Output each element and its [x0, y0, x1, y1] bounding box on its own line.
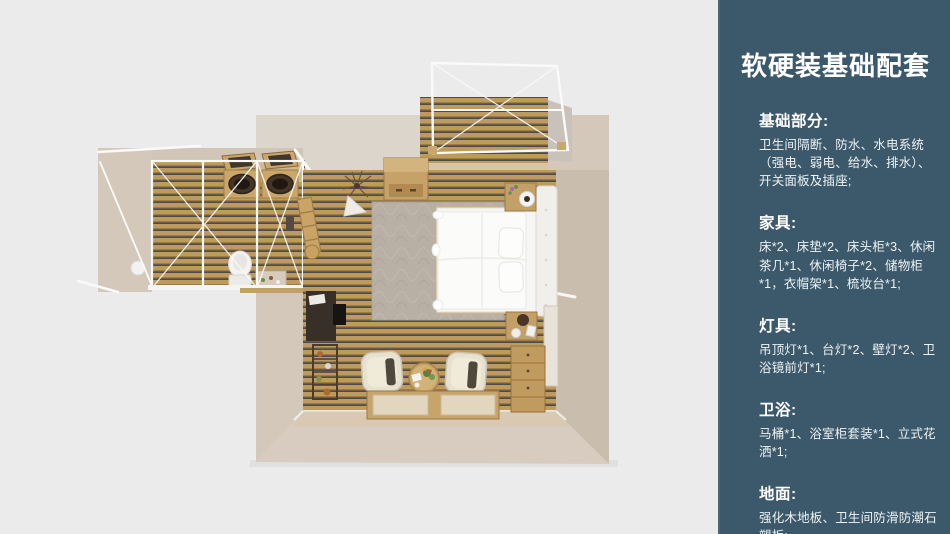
- info-sidebar: 软硬装基础配套 基础部分: 卫生间隔断、防水、水电系统（强电、弱电、给水、排水）…: [718, 0, 950, 534]
- table-lamp: [512, 329, 521, 338]
- wall-object: [286, 216, 294, 230]
- mirror-panel: [544, 306, 558, 386]
- section-heading: 灯具:: [759, 314, 937, 336]
- section-lighting: 灯具: 吊顶灯*1、台灯*2、壁灯*2、卫浴镜前灯*1;: [759, 314, 937, 377]
- section-body: 卫生间隔断、防水、水电系统（强电、弱电、给水、排水）、开关面板及插座;: [759, 136, 937, 190]
- section-body: 吊顶灯*1、台灯*2、壁灯*2、卫浴镜前灯*1;: [759, 341, 937, 377]
- section-bath: 卫浴: 马桶*1、浴室柜套装*1、立式花洒*1;: [759, 398, 937, 461]
- storage-cabinet: [384, 158, 428, 200]
- accent-pillow: [467, 361, 478, 389]
- mat: [373, 395, 428, 415]
- sidebar-title: 软硬装基础配套: [741, 46, 937, 83]
- section-heading: 家具:: [759, 211, 937, 233]
- toilet: [229, 251, 252, 286]
- section-floor: 地面: 强化木地板、卫生间防滑防潮石塑板;: [759, 482, 937, 534]
- section-heading: 地面:: [759, 482, 937, 504]
- basket: [305, 245, 319, 259]
- section-basics: 基础部分: 卫生间隔断、防水、水电系统（强电、弱电、给水、排水）、开关面板及插座…: [759, 109, 937, 190]
- page: 软硬装基础配套 基础部分: 卫生间隔断、防水、水电系统（强电、弱电、给水、排水）…: [0, 0, 950, 534]
- nightstand-top: [505, 183, 536, 211]
- headboard: [536, 186, 557, 316]
- section-furniture: 家具: 床*2、床垫*2、床头柜*3、休闲茶几*1、休闲椅子*2、储物柜*1，衣…: [759, 211, 937, 292]
- fur-throw: [433, 211, 443, 219]
- section-body: 床*2、床垫*2、床头柜*3、休闲茶几*1、休闲椅子*2、储物柜*1，衣帽架*1…: [759, 238, 937, 292]
- floorplan-image: [0, 0, 718, 534]
- section-body: 马桶*1、浴室柜套装*1、立式花洒*1;: [759, 425, 937, 461]
- mat: [441, 395, 495, 415]
- bathroom-annex: [78, 146, 318, 293]
- pillow: [498, 227, 524, 258]
- dresser: [511, 346, 545, 412]
- tv-screen: [333, 304, 346, 325]
- coffee-table: [409, 363, 439, 393]
- accent-pillow: [385, 358, 396, 386]
- nightstand-bottom: [506, 312, 537, 340]
- section-body: 强化木地板、卫生间防滑防潮石塑板;: [759, 509, 937, 534]
- pillow: [498, 262, 523, 293]
- lounge-chair-right: [445, 352, 488, 396]
- section-heading: 卫浴:: [759, 398, 937, 420]
- lounge-chair-left: [361, 351, 404, 394]
- section-heading: 基础部分:: [759, 109, 937, 131]
- tatami-platform: [367, 391, 499, 419]
